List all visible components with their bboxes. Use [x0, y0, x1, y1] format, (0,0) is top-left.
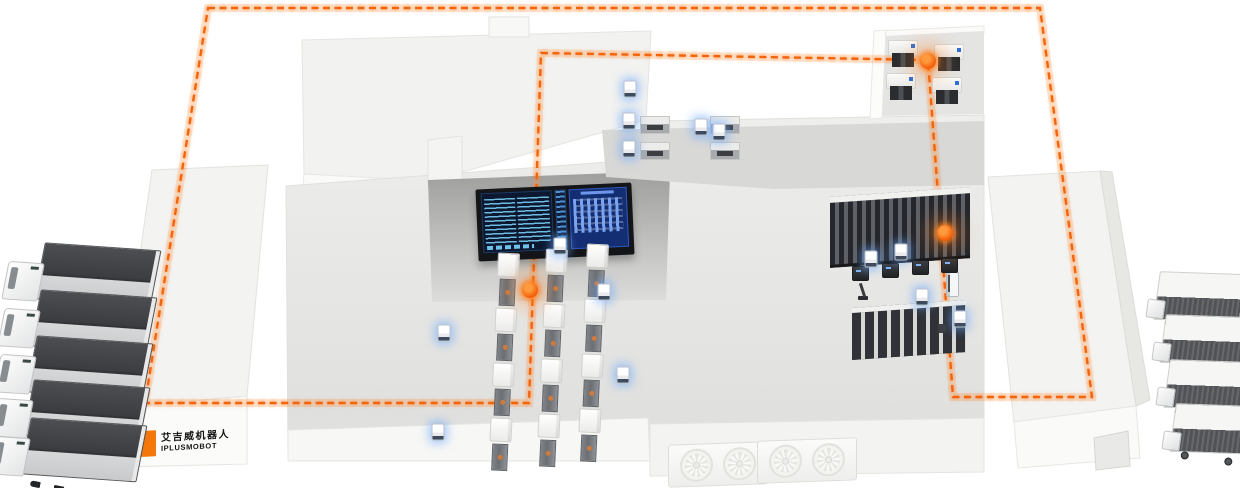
- line-conveyor: [499, 279, 516, 307]
- agv-shuttle: [438, 325, 451, 342]
- production-line: [487, 252, 521, 473]
- machining-center: [934, 44, 964, 71]
- van-wheel: [1180, 451, 1189, 460]
- machining-room-node: [920, 53, 936, 69]
- line-conveyor: [585, 325, 602, 353]
- fan-icon: [723, 447, 756, 481]
- machining-center: [886, 73, 916, 100]
- agv-shuttle: [623, 113, 636, 130]
- mezzanine-machine: [640, 116, 670, 134]
- agv-shuttle: [617, 367, 630, 384]
- agv-shuttle: [554, 238, 567, 255]
- line-workstation: [581, 353, 604, 378]
- line-conveyor: [547, 275, 564, 303]
- machine-base: [890, 86, 912, 100]
- van-cab: [1161, 430, 1181, 451]
- delivery-van: [1160, 398, 1240, 471]
- line-workstation: [583, 298, 606, 323]
- agv-shuttle: [598, 284, 611, 301]
- line-workstation: [494, 307, 517, 332]
- forklift-agv: [946, 272, 959, 297]
- machine-base: [938, 57, 960, 71]
- dashboard-schematic-panel: [568, 187, 629, 250]
- dashboard-table-column: [517, 196, 550, 242]
- van-wheel: [1224, 457, 1233, 466]
- hvac-unit: [757, 437, 857, 483]
- mezzanine-machine: [710, 142, 740, 160]
- line-workstation: [492, 362, 515, 387]
- brand-name-en: IPLUSMOBOT: [161, 441, 230, 453]
- machine-base: [892, 53, 914, 67]
- hvac-unit: [668, 441, 768, 487]
- agv-shuttle: [916, 289, 929, 306]
- agv-shuttle: [954, 311, 967, 328]
- machine-base: [936, 90, 958, 104]
- line-workstation: [537, 413, 560, 438]
- line-conveyor: [580, 434, 597, 462]
- line-workstation: [578, 408, 601, 433]
- dashboard-table-column: [484, 198, 517, 244]
- line-conveyor: [496, 334, 513, 362]
- line-workstation: [540, 358, 563, 383]
- line-workstation: [489, 417, 512, 442]
- fan-icon: [680, 448, 713, 482]
- line-conveyor: [542, 384, 559, 412]
- production-line: [535, 248, 569, 469]
- rack-pick-station: [912, 260, 929, 275]
- line-conveyor: [494, 388, 511, 416]
- line-workstation: [586, 244, 609, 269]
- machine-indicator: [955, 81, 959, 85]
- agv-shuttle: [695, 119, 708, 136]
- machine-indicator: [909, 77, 913, 81]
- fan-icon: [769, 444, 802, 478]
- assembly-area-node: [522, 282, 538, 298]
- agv-shuttle: [432, 424, 445, 441]
- line-conveyor: [491, 443, 508, 471]
- line-conveyor: [539, 439, 556, 467]
- rack-pick-station: [941, 258, 958, 273]
- robot-arm: [856, 282, 870, 300]
- mini-robot: [938, 324, 946, 333]
- machine-indicator: [911, 44, 915, 48]
- agv-shuttle: [624, 81, 637, 98]
- agv-shuttle: [623, 141, 636, 158]
- line-workstation: [497, 253, 520, 278]
- production-line: [576, 243, 610, 464]
- rack-pick-station: [852, 266, 869, 281]
- machine-indicator: [957, 48, 961, 52]
- factory-overview-scene: 艾吉威机器人 IPLUSMOBOT: [0, 0, 1240, 488]
- rack-pick-station: [882, 263, 899, 278]
- line-workstation: [542, 303, 565, 328]
- fan-icon: [812, 443, 845, 477]
- agv-shuttle: [865, 251, 878, 268]
- mezzanine-machine: [640, 142, 670, 160]
- machining-center: [888, 40, 918, 67]
- agv-shuttle: [713, 124, 726, 141]
- line-conveyor: [583, 379, 600, 407]
- agv-shuttle: [895, 244, 908, 261]
- storage-rack-node: [937, 225, 953, 241]
- truck-trailer: [20, 417, 148, 482]
- pallet-cabinet-row: [852, 300, 966, 360]
- line-conveyor: [544, 330, 561, 358]
- dashboard-data-tables-panel: [481, 190, 554, 253]
- truck-wheels: [30, 480, 102, 488]
- machining-center: [932, 77, 962, 104]
